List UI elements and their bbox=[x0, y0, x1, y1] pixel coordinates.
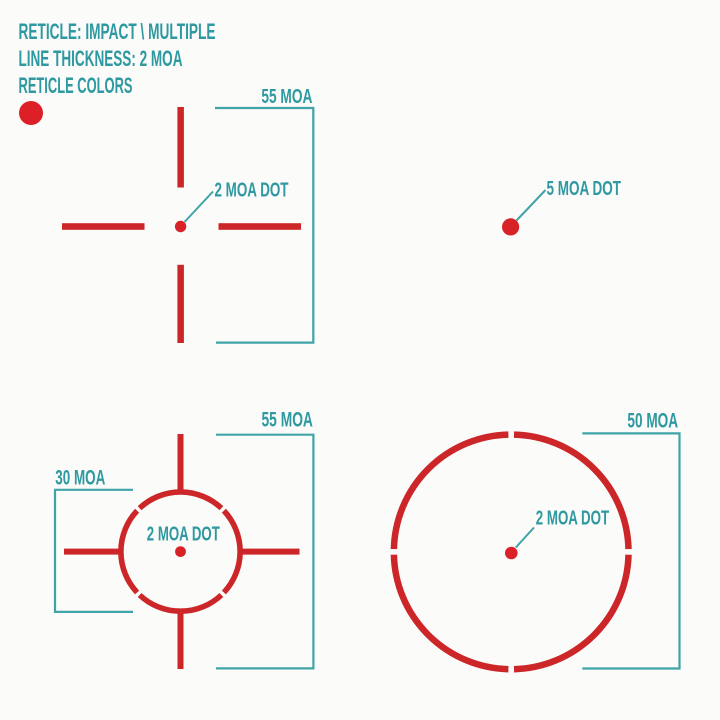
svg-text:55 MOA: 55 MOA bbox=[261, 86, 312, 108]
svg-text:RETICLE COLORS: RETICLE COLORS bbox=[19, 73, 133, 98]
svg-text:2 MOA DOT: 2 MOA DOT bbox=[147, 524, 220, 546]
svg-text:2 MOA DOT: 2 MOA DOT bbox=[215, 179, 289, 201]
svg-text:50 MOA: 50 MOA bbox=[627, 409, 678, 432]
svg-text:RETICLE: IMPACT \ MULTIPLE: RETICLE: IMPACT \ MULTIPLE bbox=[19, 19, 216, 44]
svg-text:5 MOA DOT: 5 MOA DOT bbox=[547, 178, 622, 200]
svg-text:55 MOA: 55 MOA bbox=[262, 409, 313, 432]
svg-text:2 MOA DOT: 2 MOA DOT bbox=[536, 507, 609, 529]
svg-text:30 MOA: 30 MOA bbox=[55, 467, 105, 490]
svg-text:LINE THICKNESS: 2 MOA: LINE THICKNESS: 2 MOA bbox=[19, 46, 183, 71]
